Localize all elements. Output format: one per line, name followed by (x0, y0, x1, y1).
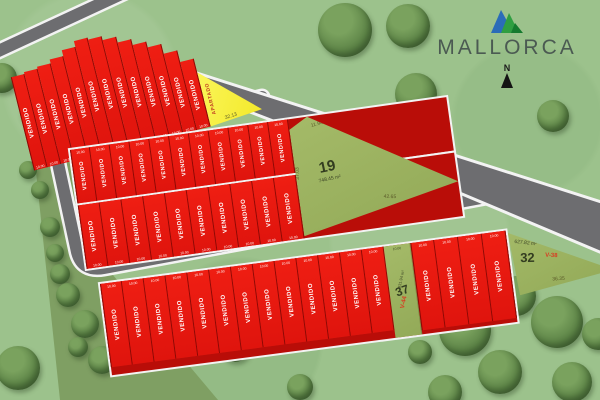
lot-measure: 10.00 (95, 146, 104, 151)
tree-icon (408, 340, 432, 364)
lot-measure: 10.00 (346, 251, 355, 256)
lot-32-code: V-38 (545, 253, 558, 260)
lot-measure: 10.00 (237, 266, 246, 271)
lot-measure: 10.00 (234, 127, 243, 132)
lot-sold-label: VENDIDO (262, 195, 272, 227)
lot-reserved-edge-top: 25.94 (216, 79, 230, 88)
lot-measure: 10.00 (76, 149, 85, 154)
lot-measure: 10.00 (136, 256, 145, 261)
compass-label: N (504, 64, 511, 72)
lot-37-edge-top: 10.00 (392, 245, 401, 250)
lot-sold-label: VENDIDO (446, 266, 456, 298)
tree-icon (537, 100, 569, 132)
lot-sold-label: VENDIDO (470, 263, 480, 295)
lot-sold-label: VENDIDO (217, 141, 227, 171)
lot-measure: 10.00 (288, 234, 297, 239)
lot-measure: 10.00 (281, 260, 290, 265)
brand: MALLORCA N (422, 6, 592, 88)
lot-measure: 10.00 (245, 240, 254, 245)
lot-sold-label: VENDIDO (177, 147, 187, 177)
lot-sold-label: VENDIDO (197, 144, 207, 174)
lot-measure: 10.00 (223, 243, 232, 248)
mallorca-logo-icon (488, 6, 526, 34)
lot-measure: 10.00 (198, 122, 207, 128)
tree-icon (31, 181, 49, 199)
tree-icon (71, 310, 99, 338)
lot-measure: 10.00 (158, 253, 167, 258)
lot-measure: 10.00 (135, 141, 144, 146)
tree-icon (56, 283, 80, 307)
lot-sold-label: VENDIDO (423, 269, 433, 301)
lot-measure: 10.00 (115, 143, 124, 148)
brand-name: MALLORCA (437, 36, 577, 60)
lot-sold-label: VENDIDO (256, 135, 266, 165)
lot-sold-label: VENDIDO (109, 217, 119, 249)
lot-sold-label: VENDIDO (237, 138, 247, 168)
lot-sold-label: VENDIDO (307, 282, 317, 314)
north-arrow-icon (501, 73, 513, 88)
tree-icon (318, 3, 372, 57)
lot-measure: 10.00 (150, 277, 159, 282)
lot-measure: 10.00 (441, 239, 450, 244)
lot-sold-label: VENDIDO (218, 201, 228, 233)
lot-sold-label: VENDIDO (88, 220, 98, 252)
lot-measure: 10.00 (303, 257, 312, 262)
lot-sold-label: VENDIDO (198, 297, 208, 329)
lot-measure: 10.00 (215, 269, 224, 274)
lot-measure: 10.00 (368, 248, 377, 253)
lot-reserved-edge-bottom: 32.13 (224, 112, 238, 122)
lot-sold-label: VENDIDO (242, 291, 252, 323)
lot-measure: 10.00 (107, 283, 116, 288)
lot-sold-label: VENDIDO (154, 302, 164, 334)
lot-sold-label: VENDIDO (175, 207, 185, 239)
lot-measure: 10.00 (128, 280, 137, 285)
lot-sold-label: VENDIDO (133, 305, 143, 337)
lot-sold-label: VENDIDO (153, 210, 163, 242)
lot-sold-label: VENDIDO (118, 155, 128, 185)
lot-sold-label: VENDIDO (220, 294, 230, 326)
lot-sold-label: VENDIDO (196, 204, 206, 236)
lot-measure: 10.00 (489, 233, 498, 238)
lot-sold-label: VENDIDO (373, 274, 383, 306)
tree-icon (50, 264, 70, 284)
lot-sold-label: VENDIDO (98, 158, 108, 188)
tree-icon (46, 244, 64, 262)
lot-sold-label: VENDIDO (284, 192, 294, 224)
lot-measure: 10.00 (324, 254, 333, 259)
lot-measure: 10.00 (35, 163, 44, 169)
lot-sold-label: VENDIDO (79, 160, 89, 190)
lot-sold-label: VENDIDO (131, 214, 141, 246)
lot-32-edge-bottom: 36.35 (552, 276, 565, 283)
lot-sold-label: VENDIDO (285, 285, 295, 317)
lot-sold-label: VENDIDO (176, 300, 186, 332)
lot-32-number: 32 (520, 250, 535, 265)
lot-measure: 10.00 (49, 160, 58, 166)
lot-measure: 10.00 (114, 259, 123, 264)
lot-measure: 10.00 (184, 126, 193, 132)
lot-measure: 10.00 (179, 249, 188, 254)
lot-sold-label: VENDIDO (157, 149, 167, 179)
lot-19-edge-bottom: 42.65 (384, 194, 397, 200)
lot-sold-label: VENDIDO (111, 308, 121, 340)
lot-measure: 10.00 (172, 274, 181, 279)
lot-measure: 10.00 (266, 237, 275, 242)
lot-sold-label: VENDIDO (264, 288, 274, 320)
compass: N (501, 64, 513, 88)
lot-sold-label: VENDIDO (138, 152, 148, 182)
site-plan: VENDIDO10.00VENDIDO10.00VENDIDO10.00VEND… (0, 0, 600, 400)
lot-measure: 10.00 (418, 242, 427, 247)
lot-sold-label: VENDIDO (351, 277, 361, 309)
lot-measure: 10.00 (194, 132, 203, 137)
lot-measure: 10.00 (465, 236, 474, 241)
lot-measure: 10.00 (174, 135, 183, 140)
lot-measure: 10.00 (214, 129, 223, 134)
lot-measure: 10.00 (155, 138, 164, 143)
tree-icon (478, 350, 522, 394)
lot-sold-label: VENDIDO (188, 78, 201, 110)
lot-32-area: 627.82 m² (514, 239, 537, 248)
lot-32-edge-top: 45.67 (566, 247, 580, 256)
lot-32: 627.82 m² 32 V-38 45.67 36.35 (507, 217, 600, 295)
lot-sold-label: VENDIDO (329, 280, 339, 312)
lot-sold-label: VENDIDO (494, 260, 504, 292)
tree-icon (68, 337, 88, 357)
lot-measure: 10.00 (93, 262, 102, 267)
lot-measure: 10.00 (194, 271, 203, 276)
lot-measure: 10.00 (259, 263, 268, 268)
tree-icon (287, 374, 313, 400)
lot-19-number: 19 (317, 157, 337, 177)
lot-sold-label: VENDIDO (240, 198, 250, 230)
tree-icon (40, 217, 60, 237)
tree-icon (552, 362, 592, 400)
lot-measure: 10.00 (273, 121, 282, 126)
lot-measure: 10.00 (201, 246, 210, 251)
lot-measure: 10.00 (254, 124, 263, 129)
lot-sold-label: VENDIDO (276, 133, 286, 163)
